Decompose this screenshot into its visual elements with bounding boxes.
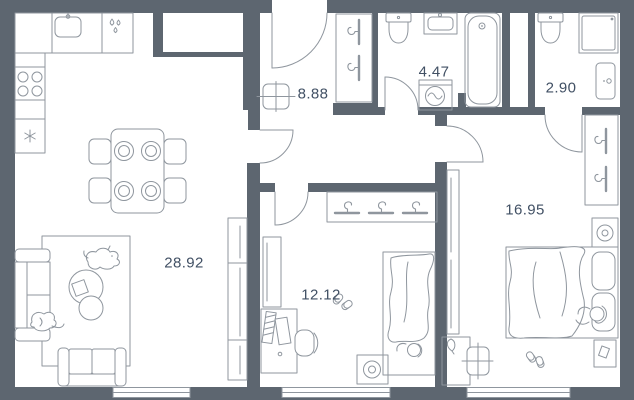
pillow xyxy=(592,252,615,290)
bed-single xyxy=(383,252,435,375)
room-area-label-shower-wc: 2.90 xyxy=(546,80,577,97)
blanket xyxy=(509,247,585,339)
window-bedroom xyxy=(467,388,570,398)
room-area-label-bathroom: 4.47 xyxy=(419,64,450,81)
room-area-label-bedroom: 16.95 xyxy=(505,202,545,219)
room-area-label-living: 28.92 xyxy=(164,255,204,272)
desk-chair xyxy=(295,330,318,356)
room-area-label-bedroom-2: 12.12 xyxy=(301,287,341,304)
bed-double xyxy=(506,247,618,339)
room-area-label-hallway: 8.88 xyxy=(298,86,329,103)
dining-table xyxy=(111,129,164,213)
apartment-floor-plan: 28.92 8.88 4.47 2.90 16.95 12.12 xyxy=(0,0,634,400)
entry-opening xyxy=(272,0,327,13)
floor-plan-drawing xyxy=(0,0,634,400)
window-living-room xyxy=(113,388,190,398)
blanket xyxy=(388,254,434,342)
loveseat xyxy=(58,348,126,386)
window-bedroom-2 xyxy=(282,388,390,398)
